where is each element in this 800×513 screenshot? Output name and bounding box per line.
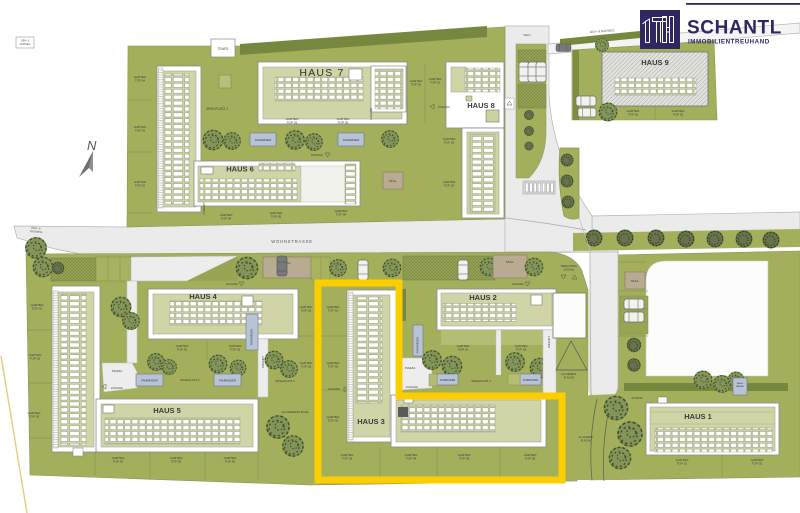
svg-text:HAUS 6: HAUS 6 bbox=[226, 165, 254, 174]
svg-text:ZUFAHRT: ZUFAHRT bbox=[547, 336, 551, 348]
svg-text:TIERGARTEN-: TIERGARTEN- bbox=[560, 264, 578, 268]
svg-text:TOP 01: TOP 01 bbox=[287, 121, 298, 125]
svg-text:ZUGANG: ZUGANG bbox=[226, 282, 238, 286]
svg-text:HAUS 2: HAUS 2 bbox=[469, 293, 497, 302]
svg-text:PIAZZA: PIAZZA bbox=[405, 366, 416, 370]
svg-text:TOP 02: TOP 02 bbox=[411, 83, 422, 87]
svg-text:HAUS 4: HAUS 4 bbox=[189, 292, 217, 301]
svg-text:FAHRRÄDER: FAHRRÄDER bbox=[416, 337, 420, 353]
svg-text:TOP 02: TOP 02 bbox=[135, 184, 146, 188]
svg-text:ALLGEMEIN: ALLGEMEIN bbox=[579, 435, 594, 439]
svg-text:FAHRRÄDER: FAHRRÄDER bbox=[141, 379, 158, 383]
svg-text:SPIELPLATZ 2: SPIELPLATZ 2 bbox=[180, 378, 200, 382]
svg-text:TOP 02: TOP 02 bbox=[328, 365, 339, 369]
svg-text:TOP 05: TOP 05 bbox=[271, 215, 282, 219]
svg-text:TOP 03: TOP 03 bbox=[29, 415, 40, 419]
svg-text:TOP 01: TOP 01 bbox=[677, 462, 688, 466]
svg-text:FAHRRÄDER: FAHRRÄDER bbox=[343, 138, 360, 142]
svg-text:TOP 01: TOP 01 bbox=[458, 348, 469, 352]
svg-text:TOP 04: TOP 04 bbox=[221, 217, 232, 221]
svg-text:SPIELPLATZ 1: SPIELPLATZ 1 bbox=[206, 107, 228, 111]
svg-text:IMMOBILIENTREUHAND: IMMOBILIENTREUHAND bbox=[688, 39, 770, 46]
svg-text:ZUGANG: ZUGANG bbox=[631, 396, 642, 400]
svg-text:FAHRRÄDER: FAHRRÄDER bbox=[255, 138, 272, 142]
svg-text:ZUGANG: ZUGANG bbox=[512, 282, 524, 286]
svg-text:MÜLL: MÜLL bbox=[506, 260, 514, 264]
svg-text:ZUGANG: ZUGANG bbox=[111, 386, 123, 390]
svg-text:TOP 01: TOP 01 bbox=[32, 307, 43, 311]
svg-text:TOP 06: TOP 06 bbox=[525, 457, 536, 461]
svg-text:TOP 04: TOP 04 bbox=[135, 79, 146, 83]
svg-text:TOP 01: TOP 01 bbox=[628, 113, 639, 117]
svg-text:TOP 02: TOP 02 bbox=[673, 113, 684, 117]
svg-text:ZUGANG: ZUGANG bbox=[328, 387, 340, 391]
svg-text:ZUGANG: ZUGANG bbox=[369, 108, 373, 120]
svg-text:WOHNSTRASSE: WOHNSTRASSE bbox=[271, 239, 313, 244]
svg-text:SPIELPLATZ 4: SPIELPLATZ 4 bbox=[471, 379, 491, 383]
svg-text:ALLGEMEINFLÄCHE: ALLGEMEINFLÄCHE bbox=[281, 410, 308, 414]
svg-text:N: N bbox=[87, 138, 97, 153]
svg-text:HAUS 3: HAUS 3 bbox=[357, 417, 385, 426]
svg-text:FAHR-: FAHR- bbox=[737, 382, 744, 385]
svg-text:HAUS 8: HAUS 8 bbox=[467, 101, 495, 110]
svg-text:FAHRRÄDER: FAHRRÄDER bbox=[250, 329, 254, 345]
svg-text:TOP 06: TOP 06 bbox=[336, 213, 347, 217]
svg-text:TOP 03: TOP 03 bbox=[342, 457, 353, 461]
svg-text:TOP 02: TOP 02 bbox=[516, 348, 527, 352]
svg-text:ZUGANG: ZUGANG bbox=[438, 105, 450, 109]
svg-text:TOP 02: TOP 02 bbox=[444, 184, 455, 188]
svg-text:FLÄCHE: FLÄCHE bbox=[581, 438, 592, 442]
svg-text:RÄDER: RÄDER bbox=[736, 385, 744, 388]
svg-text:TOP 03: TOP 03 bbox=[301, 309, 312, 313]
svg-text:ZUGANG: ZUGANG bbox=[563, 267, 574, 271]
svg-text:FAHRRÄDER: FAHRRÄDER bbox=[523, 379, 539, 382]
svg-text:FLÄCHE: FLÄCHE bbox=[564, 375, 575, 379]
svg-text:ZUGANG: ZUGANG bbox=[406, 385, 418, 389]
svg-text:FAHRRÄDER: FAHRRÄDER bbox=[440, 379, 456, 382]
svg-text:MÜLL: MÜLL bbox=[631, 279, 639, 283]
svg-text:ZUFAHRT: ZUFAHRT bbox=[261, 356, 265, 368]
svg-text:TRAFO: TRAFO bbox=[218, 47, 229, 51]
svg-text:TOP 05: TOP 05 bbox=[171, 460, 182, 464]
svg-text:HAUS 5: HAUS 5 bbox=[153, 406, 181, 415]
svg-text:SCHANTL: SCHANTL bbox=[687, 18, 782, 39]
svg-text:TOP 03: TOP 03 bbox=[444, 141, 455, 145]
svg-text:TOP 02: TOP 02 bbox=[230, 348, 241, 352]
svg-text:TOP 01: TOP 01 bbox=[328, 309, 339, 313]
svg-text:TOP 04: TOP 04 bbox=[406, 457, 417, 461]
svg-text:PIAZZA: PIAZZA bbox=[112, 369, 123, 373]
svg-text:HAUS 7: HAUS 7 bbox=[299, 67, 344, 79]
svg-text:TOP 02: TOP 02 bbox=[752, 462, 763, 466]
svg-text:TOP 01: TOP 01 bbox=[177, 348, 188, 352]
svg-text:SPIELPLATZ 3: SPIELPLATZ 3 bbox=[275, 379, 295, 383]
svg-text:WEG: WEG bbox=[523, 33, 531, 37]
svg-text:ALLGEMEIN-: ALLGEMEIN- bbox=[561, 372, 577, 376]
svg-text:ZUFAHRT: ZUFAHRT bbox=[202, 202, 206, 215]
svg-text:TOP 02: TOP 02 bbox=[338, 121, 349, 125]
svg-text:FAHRRÄDER: FAHRRÄDER bbox=[219, 379, 236, 383]
svg-text:TOP 02: TOP 02 bbox=[30, 357, 41, 361]
svg-text:TOP 03: TOP 03 bbox=[328, 419, 339, 423]
svg-text:TOP 21: TOP 21 bbox=[430, 81, 441, 85]
svg-text:TOP 03: TOP 03 bbox=[301, 365, 312, 369]
svg-text:TOP 05: TOP 05 bbox=[459, 457, 470, 461]
svg-text:HAUS 1: HAUS 1 bbox=[684, 412, 712, 421]
svg-text:MÜLL: MÜLL bbox=[389, 179, 397, 183]
svg-text:TOP 04: TOP 04 bbox=[113, 460, 124, 464]
svg-text:TOP 03: TOP 03 bbox=[135, 129, 146, 133]
svg-text:TOP 06: TOP 06 bbox=[225, 460, 236, 464]
svg-text:RADWEG: RADWEG bbox=[20, 43, 31, 46]
svg-text:HAUS 9: HAUS 9 bbox=[641, 58, 669, 67]
svg-text:ZUGANG: ZUGANG bbox=[311, 153, 323, 157]
